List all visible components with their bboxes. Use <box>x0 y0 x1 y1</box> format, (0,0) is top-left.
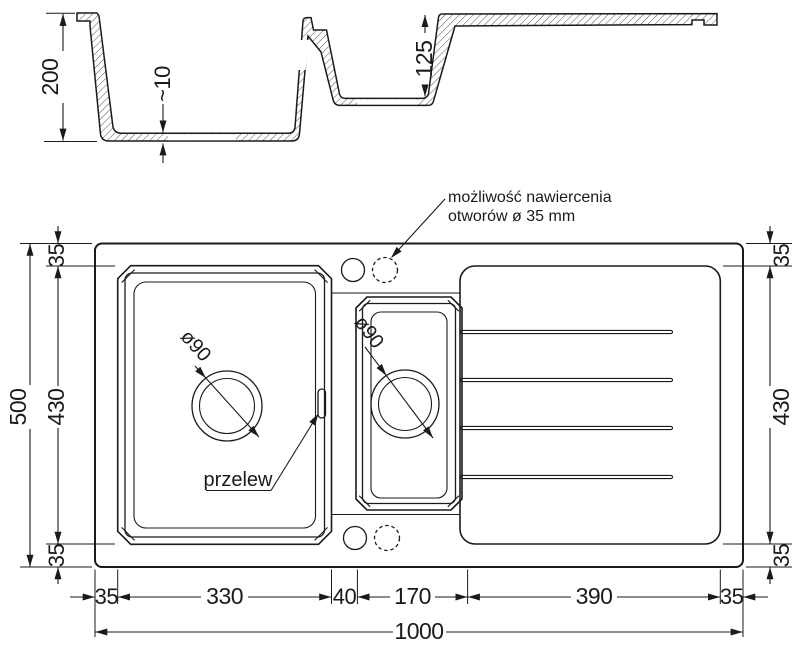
main-drain-circle-inner <box>200 379 255 434</box>
note-line-1: możliwość nawiercenia <box>448 189 612 206</box>
small-drain-circle-inner <box>379 378 432 431</box>
small-bowl: ø90 <box>350 297 462 510</box>
dim-bottom-seg-3: 170 <box>394 583 431 609</box>
section-depth-label: 200 <box>37 59 63 96</box>
optional-tap-hole-dashed <box>373 258 398 283</box>
dim-left-top: 35 <box>44 244 69 268</box>
dim-right-top: 35 <box>769 244 794 268</box>
dims-right: 35 430 35 <box>723 226 794 584</box>
main-bowl-drain-strip <box>168 134 236 140</box>
drill-hole-annotation: możliwość nawiercenia otworów ø 35 mm <box>388 189 611 260</box>
dim-left-total: 500 <box>5 389 31 426</box>
dim-left-bottom: 35 <box>44 544 69 568</box>
note-line-2: otworów ø 35 mm <box>448 208 575 225</box>
dim-bottom-seg-4: 390 <box>576 583 613 609</box>
sink-technical-drawing: 200 ~10 125 możliwość nawiercenia otworó… <box>0 0 800 646</box>
bottom-thickness-label: ~10 <box>150 66 175 102</box>
main-drain-label: ø90 <box>176 326 215 366</box>
dims-left: 500 35 430 35 <box>5 226 115 584</box>
dim-bottom-seg-2: 40 <box>333 584 357 609</box>
dim-bottom-seg-5: 35 <box>720 584 744 609</box>
tap-hole <box>342 259 365 282</box>
tap-hole-bottom <box>344 527 367 550</box>
dim-bottom-seg-0: 35 <box>95 584 119 609</box>
overflow-label: przelew <box>204 469 273 491</box>
drainer-board <box>460 266 720 544</box>
dims-bottom: 35 330 40 170 390 35 1000 <box>70 570 768 645</box>
dim-section-depth: 200 <box>37 13 97 141</box>
small-bowl-drain-strip <box>357 99 417 104</box>
dim-bottom-seg-1: 330 <box>206 583 243 609</box>
drainer-groove <box>461 475 673 478</box>
plan-view: możliwość nawiercenia otworów ø 35 mm <box>5 189 794 644</box>
optional-tap-hole-bottom-dashed <box>375 526 400 551</box>
dim-right-bottom: 35 <box>769 544 794 568</box>
main-bowl: ø90 <box>118 266 332 545</box>
drainer-groove <box>461 426 673 429</box>
technical-drawing-page: 200 ~10 125 możliwość nawiercenia otworó… <box>0 0 800 646</box>
dim-bottom-total: 1000 <box>394 618 443 644</box>
drainer-groove <box>461 330 673 333</box>
overflow-wall-break <box>297 40 310 70</box>
dim-right-middle: 430 <box>768 389 794 426</box>
section-view: 200 ~10 125 <box>37 13 717 163</box>
dim-bottom-thickness: ~10 <box>150 66 175 163</box>
small-bowl-depth-label: 125 <box>411 41 437 78</box>
dim-left-middle: 430 <box>43 389 69 426</box>
drainer-groove <box>461 378 673 381</box>
